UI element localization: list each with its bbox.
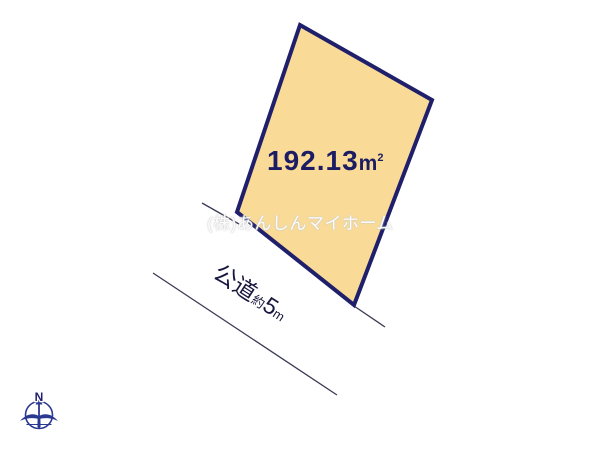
compass-bird-tail [37,416,40,429]
parcel-area-unit-exponent: 2 [377,152,383,164]
parcel-area-unit: m [359,152,378,175]
company-watermark: (株)あんしんマイホーム [207,214,394,234]
compass-icon: N [20,390,58,429]
land-plot-diagram: N 192.13m2 (株)あんしんマイホーム 公道約5m [0,0,600,449]
compass-north-label: N [35,390,44,404]
parcel-area-label: 192.13m2 [267,147,383,175]
parcel-area-value: 192.13 [267,145,359,176]
road-line-upper-right-segment [354,306,385,327]
